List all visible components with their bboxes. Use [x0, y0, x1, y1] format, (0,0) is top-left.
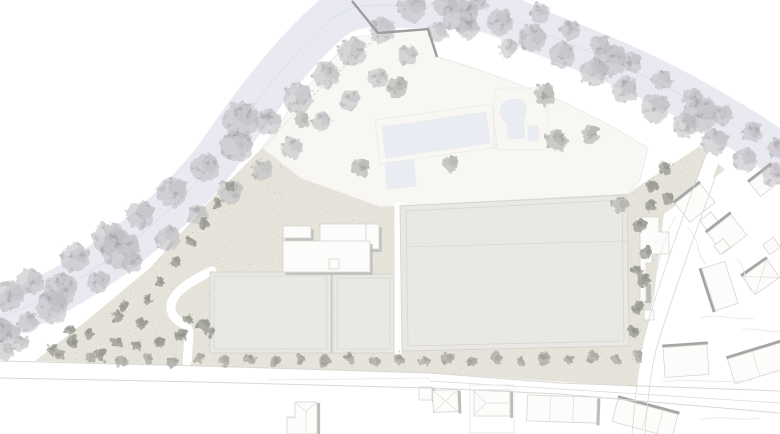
- tree: [51, 345, 57, 351]
- house-footprint: [527, 395, 598, 423]
- tree: [446, 352, 453, 359]
- tree: [405, 46, 417, 58]
- house: [433, 390, 460, 415]
- tree: [25, 313, 37, 325]
- tree: [259, 161, 271, 173]
- tree: [189, 237, 195, 243]
- site-plan-drawing: [0, 0, 780, 434]
- house-footprint: [663, 345, 709, 378]
- tree: [229, 181, 235, 187]
- house: [662, 343, 710, 378]
- tree: [711, 130, 727, 146]
- tree: [528, 25, 545, 42]
- tree: [629, 53, 641, 65]
- tree: [319, 113, 331, 125]
- tree: [175, 257, 181, 263]
- tree: [636, 302, 643, 309]
- tree: [618, 198, 628, 208]
- tree: [294, 84, 313, 103]
- tree: [567, 355, 573, 361]
- tree: [165, 227, 180, 242]
- tree: [465, 18, 479, 32]
- tree: [120, 355, 127, 362]
- site-plan-canvas: [0, 0, 780, 434]
- tree: [203, 219, 209, 225]
- tree: [136, 202, 153, 219]
- tree: [323, 355, 330, 362]
- tree: [55, 274, 76, 295]
- tree: [201, 155, 218, 172]
- large-building-roof: [333, 274, 394, 353]
- tree: [249, 354, 255, 360]
- tree: [159, 337, 165, 343]
- tree: [187, 315, 193, 321]
- tree: [659, 71, 671, 83]
- tree: [590, 351, 597, 358]
- pool: [385, 160, 416, 189]
- tree: [116, 311, 123, 318]
- tree: [71, 336, 78, 343]
- tree: [615, 354, 621, 360]
- tree: [636, 350, 643, 357]
- tree: [289, 138, 303, 152]
- tree: [742, 149, 757, 164]
- tree: [300, 113, 310, 123]
- tree: [537, 5, 549, 17]
- pool: [528, 126, 539, 141]
- tree: [494, 352, 501, 359]
- plan-line: [268, 378, 430, 380]
- tree: [558, 43, 574, 59]
- tree: [115, 336, 122, 343]
- tree: [666, 192, 673, 199]
- house-footprint: [702, 261, 738, 310]
- tree: [496, 10, 512, 26]
- tree: [3, 344, 14, 355]
- tree: [663, 162, 672, 171]
- tree: [18, 337, 28, 347]
- tree: [519, 356, 525, 362]
- tree: [651, 95, 668, 112]
- tree: [322, 63, 338, 79]
- tree: [95, 272, 109, 286]
- tree: [471, 356, 477, 362]
- plan-line: [700, 418, 760, 420]
- tree: [201, 319, 208, 326]
- tree: [71, 245, 88, 262]
- house: [474, 390, 512, 418]
- tree: [644, 246, 651, 253]
- house-footprint: [763, 237, 780, 254]
- tree: [209, 327, 215, 333]
- tree: [123, 301, 129, 307]
- tree: [168, 178, 187, 197]
- large-building-roof: [210, 272, 331, 353]
- tree: [264, 110, 280, 126]
- tree: [641, 274, 650, 283]
- tree: [542, 352, 549, 359]
- tree: [719, 106, 731, 118]
- tree: [749, 123, 761, 135]
- tree: [636, 265, 642, 271]
- tree: [631, 326, 638, 333]
- tree: [98, 349, 105, 356]
- house-footprint: [419, 387, 432, 400]
- tree: [299, 354, 305, 360]
- white-building: [283, 226, 311, 238]
- tree: [374, 356, 380, 362]
- house: [526, 395, 598, 425]
- tree: [448, 157, 458, 167]
- tree: [159, 277, 165, 283]
- tree: [423, 356, 429, 362]
- tree: [235, 103, 257, 125]
- tree: [349, 353, 355, 359]
- tree: [553, 130, 567, 144]
- tree: [198, 353, 204, 359]
- tree: [394, 78, 406, 90]
- tree: [136, 342, 142, 348]
- tree: [89, 352, 95, 358]
- tree: [648, 199, 655, 206]
- tree: [347, 91, 359, 103]
- house: [726, 340, 780, 384]
- tree: [129, 253, 141, 265]
- tree: [26, 270, 42, 286]
- house-shadow: [459, 391, 460, 414]
- tree: [171, 356, 178, 363]
- tree: [138, 317, 145, 324]
- tree: [195, 206, 207, 218]
- tree: [621, 78, 637, 94]
- tree: [69, 325, 75, 331]
- tree: [398, 353, 405, 360]
- tree: [146, 295, 152, 301]
- large-building-roof: [400, 195, 629, 351]
- house: [700, 260, 738, 312]
- tree: [180, 329, 187, 336]
- plan-line: [700, 316, 754, 319]
- house: [419, 387, 434, 402]
- tree: [650, 180, 657, 187]
- white-building: [283, 241, 370, 272]
- tree: [588, 126, 599, 137]
- tree: [567, 21, 579, 33]
- white-building: [329, 259, 339, 269]
- house-shadow: [598, 398, 599, 425]
- tree: [87, 328, 93, 334]
- tree: [375, 69, 387, 81]
- house: [741, 258, 780, 295]
- tree: [147, 354, 153, 360]
- house: [763, 237, 780, 254]
- tree: [542, 85, 556, 99]
- tree: [217, 199, 223, 205]
- tree: [59, 349, 65, 355]
- tree: [222, 355, 229, 362]
- tree: [638, 219, 647, 228]
- plan-line: [742, 329, 780, 332]
- tree: [273, 356, 280, 363]
- tree: [358, 160, 369, 171]
- tree: [435, 23, 447, 35]
- tree: [506, 40, 517, 51]
- tree: [348, 39, 365, 56]
